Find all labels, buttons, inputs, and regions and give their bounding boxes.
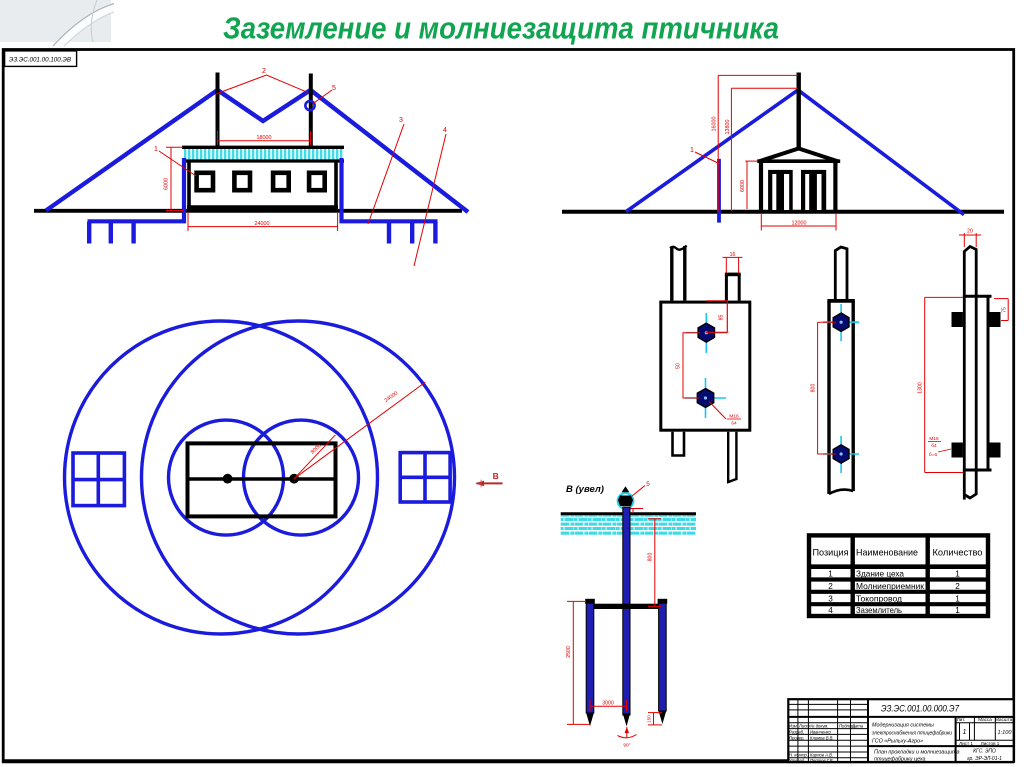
svg-text:Лист 1: Лист 1: [959, 741, 973, 746]
svg-text:1: 1: [955, 570, 960, 579]
svg-text:Наименование: Наименование: [856, 548, 918, 558]
svg-text:Карпов А.В.: Карпов А.В.: [810, 753, 833, 758]
svg-text:1: 1: [955, 606, 960, 615]
svg-text:б4: б4: [931, 443, 937, 449]
svg-text:1: 1: [154, 146, 158, 153]
svg-text:1: 1: [690, 147, 694, 154]
svg-text:КГС. ЭПО: КГС. ЭПО: [973, 749, 996, 755]
svg-text:64: 64: [731, 421, 737, 427]
svg-text:б=6: б=6: [929, 452, 938, 458]
svg-text:5: 5: [332, 85, 336, 92]
svg-text:24000: 24000: [255, 221, 270, 227]
svg-text:Молниеприемник: Молниеприемник: [856, 582, 924, 591]
svg-text:Лит.: Лит.: [957, 717, 966, 722]
svg-text:800: 800: [648, 553, 654, 562]
svg-text:800: 800: [811, 384, 817, 393]
svg-text:5: 5: [646, 481, 650, 488]
svg-text:Листов 1: Листов 1: [981, 741, 1000, 746]
svg-text:13800: 13800: [725, 120, 731, 135]
svg-text:Заземлитель: Заземлитель: [856, 606, 902, 615]
svg-text:16000: 16000: [711, 117, 717, 132]
svg-text:Лист: Лист: [798, 724, 810, 729]
svg-text:гр. ЭР-ЭЛ-01-1: гр. ЭР-ЭЛ-01-1: [967, 756, 1002, 762]
svg-text:Количество: Количество: [933, 548, 983, 558]
svg-text:16: 16: [730, 252, 736, 258]
svg-text:1300: 1300: [918, 382, 924, 394]
svg-text:90°: 90°: [623, 743, 630, 749]
svg-text:Масштаб: Масштаб: [995, 717, 1015, 722]
svg-text:Провер.: Провер.: [789, 736, 805, 741]
svg-text:1:100: 1:100: [998, 730, 1013, 736]
svg-text:ЭЗ.ЭС.001.00.000.Э7: ЭЗ.ЭС.001.00.000.Э7: [881, 704, 960, 715]
svg-text:Дата: Дата: [851, 724, 864, 729]
svg-text:Позиция: Позиция: [813, 548, 849, 558]
svg-text:Модернизация системы: Модернизация системы: [872, 723, 934, 729]
svg-text:№ докум.: № докум.: [810, 724, 828, 729]
svg-text:18000: 18000: [257, 135, 272, 141]
svg-text:птицефабрики цеха: птицефабрики цеха: [874, 757, 926, 763]
svg-text:3000: 3000: [602, 701, 614, 707]
svg-text:Токопровод: Токопровод: [856, 594, 902, 603]
svg-text:6000: 6000: [163, 178, 169, 190]
svg-text:20: 20: [967, 229, 973, 235]
svg-text:Масса: Масса: [978, 717, 992, 722]
svg-text:Разраб.: Разраб.: [789, 730, 804, 735]
svg-text:Климов В.В.: Климов В.В.: [810, 736, 834, 741]
svg-text:2: 2: [262, 68, 266, 75]
svg-text:1: 1: [828, 570, 833, 579]
svg-text:75: 75: [1002, 307, 1008, 313]
svg-text:50: 50: [676, 363, 682, 369]
svg-text:Здание цеха: Здание цеха: [856, 570, 904, 579]
svg-text:1: 1: [955, 594, 960, 603]
svg-text:2: 2: [955, 582, 960, 591]
svg-text:ЭЗ.ЭС.001.00.100.ЭВ: ЭЗ.ЭС.001.00.100.ЭВ: [9, 58, 71, 64]
svg-text:4: 4: [828, 606, 833, 615]
svg-text:4: 4: [443, 127, 447, 134]
svg-text:1: 1: [963, 729, 967, 736]
svg-text:6000: 6000: [740, 180, 746, 192]
svg-text:2: 2: [828, 582, 833, 591]
svg-text:Петров Г.В.: Петров Г.В.: [810, 758, 834, 763]
svg-text:План прокладки и молниезащита: План прокладки и молниезащита: [874, 750, 959, 756]
svg-text:Утверд.: Утверд.: [789, 758, 805, 763]
svg-text:85: 85: [718, 315, 724, 321]
svg-text:3: 3: [399, 117, 403, 124]
svg-text:В (увел): В (увел): [566, 484, 604, 495]
svg-text:электроснабжения птицефабрики: электроснабжения птицефабрики: [872, 731, 952, 737]
svg-text:12000: 12000: [792, 221, 807, 227]
svg-text:Н. контр.: Н. контр.: [789, 753, 808, 758]
svg-text:Изм: Изм: [789, 724, 797, 729]
svg-text:ГСО «Рыльху-Агро»: ГСО «Рыльху-Агро»: [872, 739, 923, 745]
svg-text:В: В: [493, 471, 499, 481]
svg-text:Заземление и молниезащита птич: Заземление и молниезащита птичника: [223, 11, 779, 46]
svg-text:3: 3: [828, 594, 833, 603]
svg-text:24000: 24000: [384, 390, 400, 404]
svg-text:150: 150: [647, 715, 652, 723]
svg-text:2500: 2500: [566, 646, 572, 658]
svg-text:Иванченко: Иванченко: [810, 730, 832, 735]
